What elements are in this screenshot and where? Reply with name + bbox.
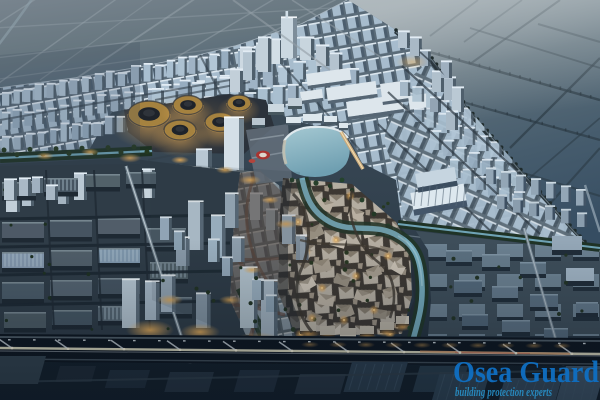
svg-text:Osea Guard: Osea Guard xyxy=(453,354,599,389)
svg-text:building protection experts: building protection experts xyxy=(455,385,552,399)
